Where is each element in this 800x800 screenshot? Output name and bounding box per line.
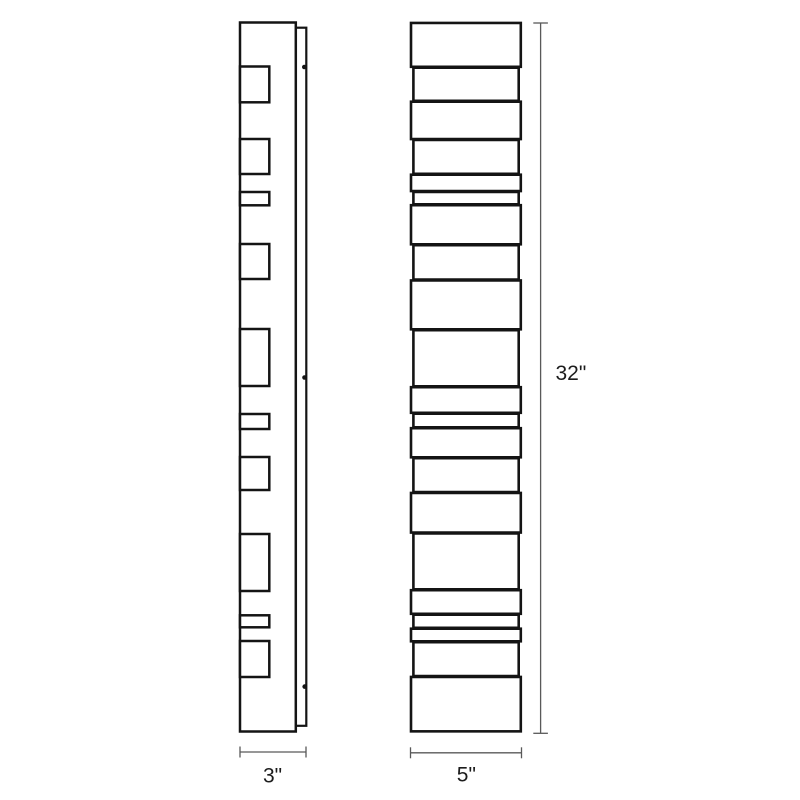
svg-text:32": 32" <box>556 362 587 385</box>
svg-text:5": 5" <box>457 764 476 787</box>
svg-text:3": 3" <box>263 764 282 787</box>
